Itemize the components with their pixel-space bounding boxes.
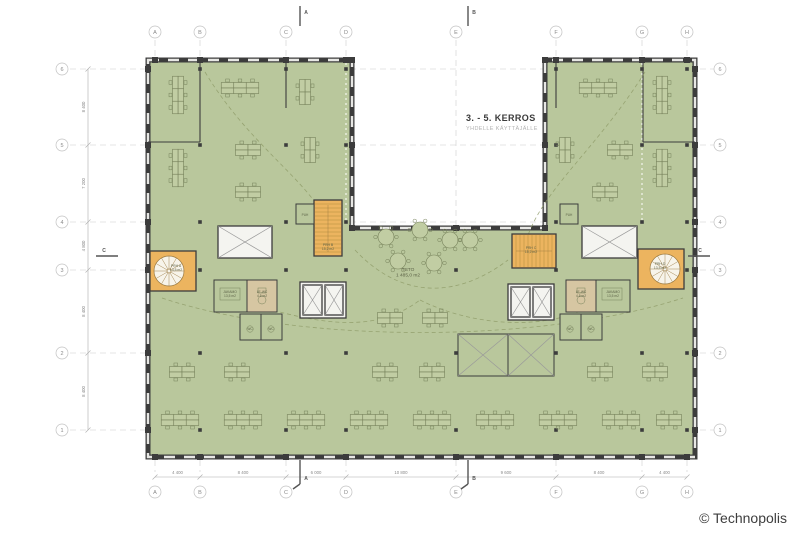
- floor-subtitle: YHDELLE KÄYTTÄJÄLLE: [466, 126, 538, 132]
- grid-col-label: A: [153, 30, 157, 36]
- grid-row-label: 3: [718, 268, 721, 274]
- grid-col-label: B: [198, 490, 202, 496]
- room-label-wc: WC: [247, 327, 253, 331]
- grid-col-label: H: [685, 490, 689, 496]
- room-label-prh_d: PRH D13,5 m2: [654, 262, 666, 270]
- dim-label-bottom: 8 400: [594, 470, 605, 475]
- grid-col-label: D: [344, 490, 348, 496]
- grid-row-label: 6: [60, 67, 63, 73]
- grid-row-label: 3: [60, 268, 63, 274]
- room-label-prh_a: PRH A13,5 m2: [170, 264, 182, 272]
- grid-col-label: B: [198, 30, 202, 36]
- dim-label-left: 8 400: [81, 386, 86, 397]
- grid-col-label: H: [685, 30, 689, 36]
- grid-row-label: 4: [718, 220, 721, 226]
- floor-plan-drawing: AABBCCDDEEFFGGHH6655443322114 4008 4006 …: [0, 0, 800, 533]
- grid-col-label: A: [153, 490, 157, 496]
- room-label-jakamo_r: JAKAMO13,5 m2: [606, 290, 620, 298]
- dim-label-bottom: 8 400: [238, 470, 249, 475]
- grid-row-label: 6: [718, 67, 721, 73]
- room-label-puh: PUH: [302, 213, 309, 217]
- grid-row-label: 4: [60, 220, 63, 226]
- grid-row-label: 2: [60, 351, 63, 357]
- section-label: A: [304, 476, 308, 482]
- room-label-jakamo_l: JAKAMO13,5 m2: [223, 290, 237, 298]
- grid-col-label: E: [454, 30, 458, 36]
- room-label-wc: WC: [567, 327, 573, 331]
- grid-col-label: E: [454, 490, 458, 496]
- section-label: C: [102, 248, 106, 254]
- section-label: C: [698, 248, 702, 254]
- copyright-text: © Technopolis: [699, 510, 787, 526]
- section-label: A: [304, 10, 308, 16]
- room-label-wc: WC: [588, 327, 594, 331]
- room-label-prh_c: PRH C15,2 m2: [525, 246, 537, 254]
- floor-title: 3. - 5. KERROS: [466, 113, 536, 123]
- grid-col-label: G: [640, 490, 644, 496]
- grid-col-label: C: [284, 30, 288, 36]
- grid-row-label: 5: [718, 143, 721, 149]
- dim-label-left: 8 400: [81, 306, 86, 317]
- room-label-prh_b: PRH B15,2 m2: [322, 243, 334, 251]
- dim-label-bottom: 6 000: [311, 470, 322, 475]
- grid-col-label: G: [640, 30, 644, 36]
- grid-col-label: D: [344, 30, 348, 36]
- section-label: B: [472, 10, 476, 16]
- grid-row-label: 1: [718, 428, 721, 434]
- floor-plan-page: AABBCCDDEEFFGGHH6655443322114 4008 4006 …: [0, 0, 800, 533]
- grid-col-label: C: [284, 490, 288, 496]
- grid-row-label: 1: [60, 428, 63, 434]
- room-label-lewc_l: LE-WC4,5 m2: [257, 290, 268, 298]
- dim-label-bottom: 9 600: [501, 470, 512, 475]
- grid-row-label: 2: [718, 351, 721, 357]
- dim-label-left: 8 400: [81, 101, 86, 112]
- dim-label-left: 7 200: [81, 178, 86, 189]
- dim-label-left: 4 800: [81, 240, 86, 251]
- room-label-lewc_r: LE-WC4,5 m2: [576, 290, 587, 298]
- dim-label-bottom: 4 400: [659, 470, 670, 475]
- room-label-puh: PUH: [566, 213, 573, 217]
- dim-label-bottom: 4 400: [172, 470, 183, 475]
- section-label: B: [472, 476, 476, 482]
- room-label-wc: WC: [268, 327, 274, 331]
- grid-row-label: 5: [60, 143, 63, 149]
- dim-label-bottom: 10 800: [394, 470, 408, 475]
